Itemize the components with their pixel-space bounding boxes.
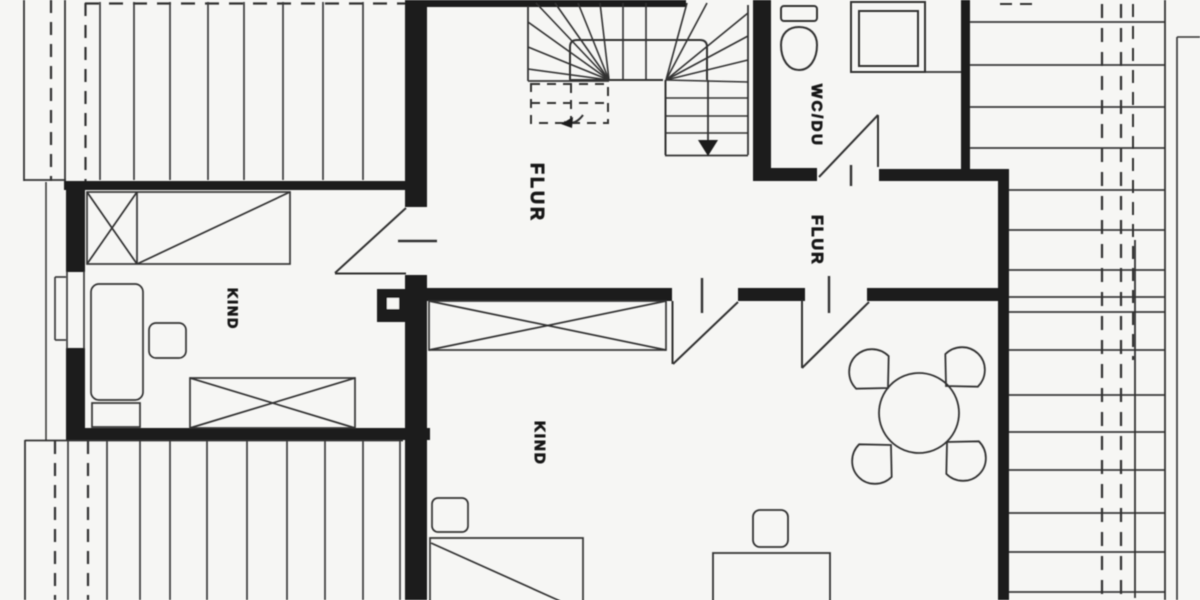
svg-text:KIND: KIND bbox=[531, 421, 548, 466]
svg-text:KIND: KIND bbox=[225, 288, 241, 330]
svg-text:FLUR: FLUR bbox=[808, 215, 825, 266]
svg-text:WC/DU: WC/DU bbox=[808, 84, 825, 147]
svg-text:FLUR: FLUR bbox=[527, 163, 547, 223]
